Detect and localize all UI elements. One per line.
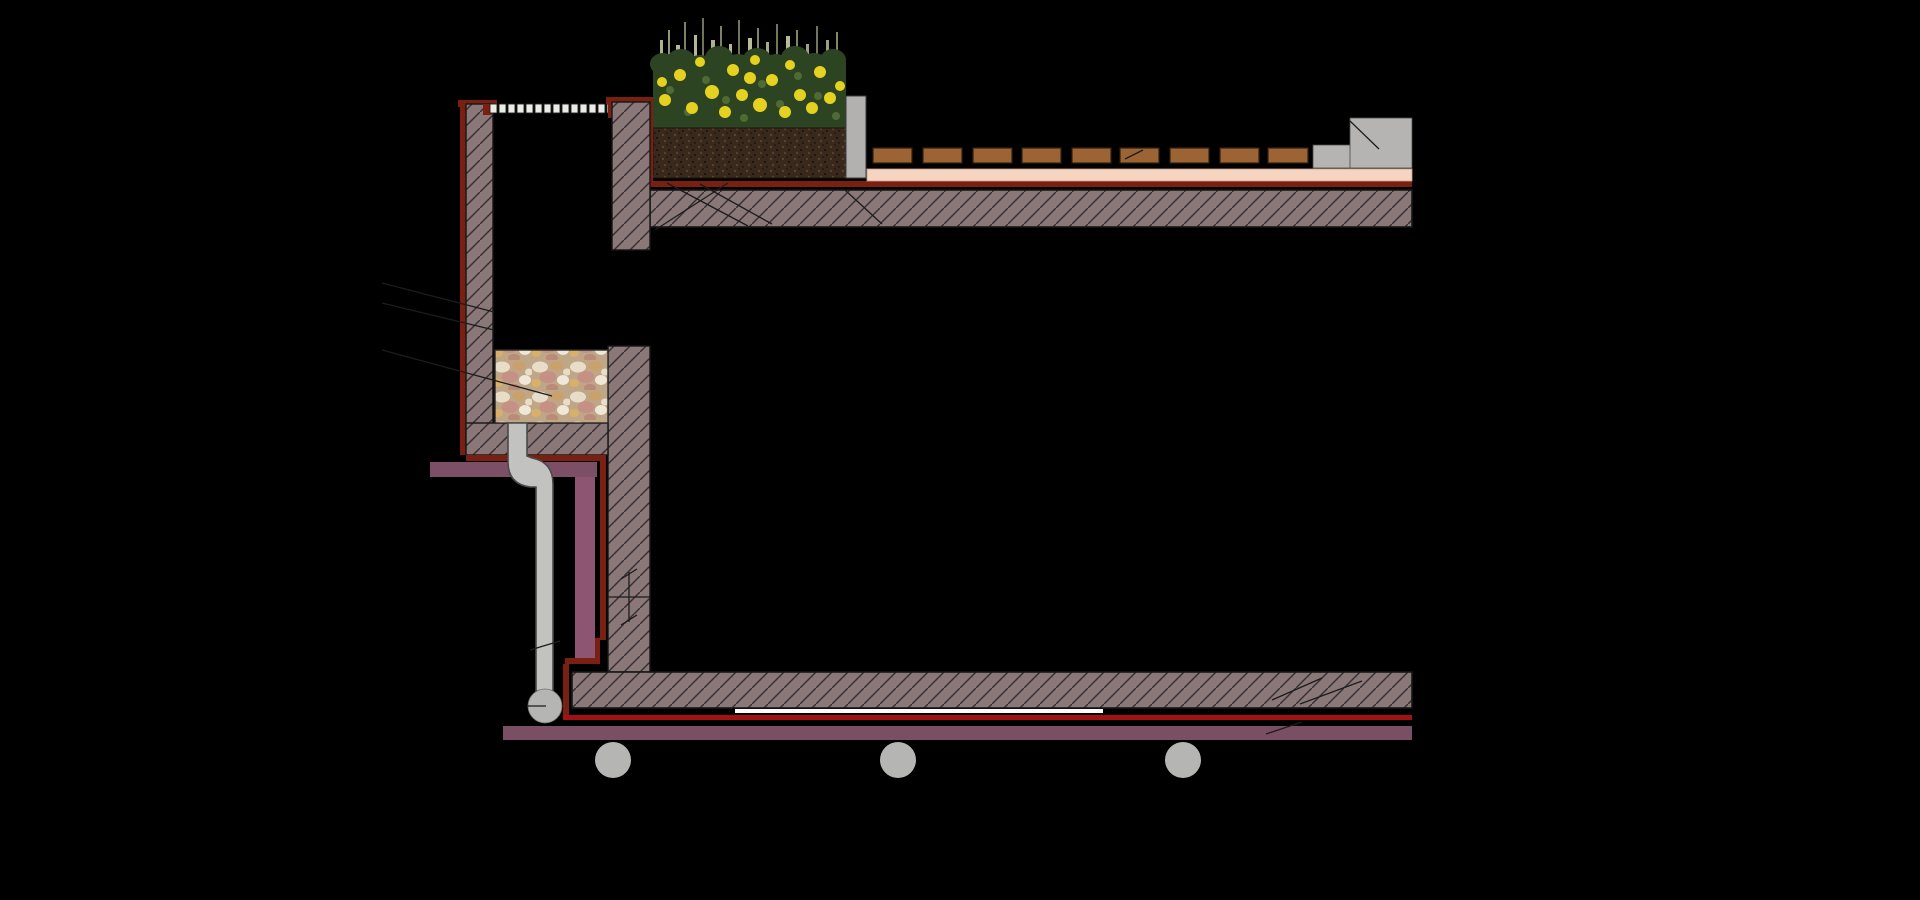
separation-layer-line <box>735 709 1103 713</box>
bedding-screed-layer <box>867 169 1412 181</box>
deck-boards <box>873 148 1308 163</box>
channel-wall-left <box>458 100 497 455</box>
detail-drawing-canvas <box>0 0 1920 900</box>
label-box-blackout <box>1103 15 1413 67</box>
drainage-gravel-box <box>495 350 608 423</box>
planting-soil <box>653 128 846 178</box>
ceiling-insulation-band <box>503 726 1412 740</box>
background <box>0 0 1920 900</box>
section-drawing <box>0 0 1920 900</box>
channel-wall-right <box>606 97 653 250</box>
concrete-curb <box>846 96 866 178</box>
planter-foliage <box>650 46 846 130</box>
lower-wall-column <box>608 346 650 672</box>
membrane-under-slab <box>563 715 1412 720</box>
channel-base-mass <box>466 423 608 455</box>
waterproofing-membrane-top <box>648 181 1412 187</box>
lower-structural-slab <box>572 672 1412 708</box>
wall-insulation-riser <box>575 477 595 658</box>
upper-structural-slab <box>650 190 1412 227</box>
